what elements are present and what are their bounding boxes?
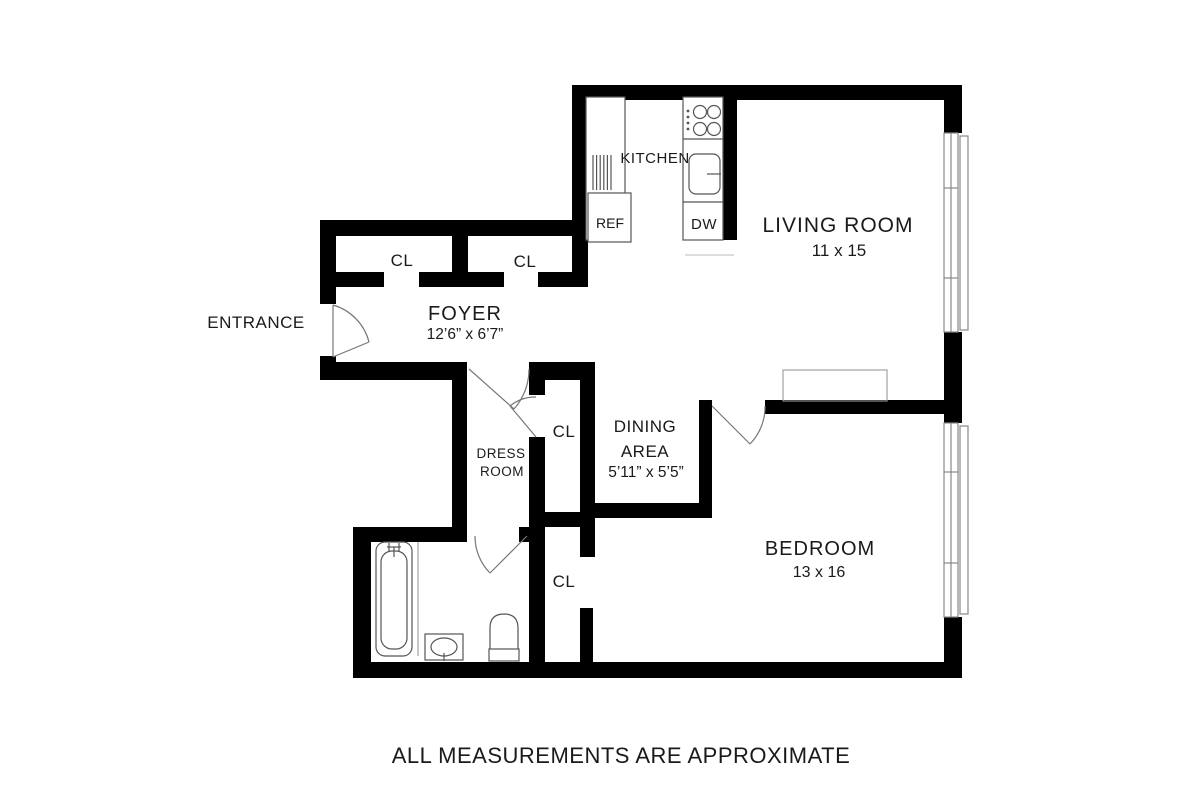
closet-upper-left-label: CL — [391, 251, 414, 270]
radiator-icon — [783, 370, 887, 401]
wall-closet-bottom-a — [334, 272, 384, 287]
closet-hall-label: CL — [553, 422, 576, 441]
floor-plan: KITCHEN REF DW LIVING ROOM 11 x 15 CL CL… — [0, 0, 1200, 800]
bedroom-window-icon — [944, 423, 968, 617]
kitchen-label: KITCHEN — [620, 150, 689, 167]
wall-kitchen-right — [722, 97, 737, 240]
dishwasher-label: DW — [691, 216, 717, 233]
bathroom-fixtures — [376, 542, 519, 661]
wall-dining-left — [580, 362, 595, 557]
toilet-icon — [489, 614, 519, 661]
floor-plan-page: KITCHEN REF DW LIVING ROOM 11 x 15 CL CL… — [0, 0, 1200, 800]
wall-bedroomcl-right-lower — [580, 608, 593, 662]
dining-area-dims: 5’11” x 5’5” — [608, 464, 684, 481]
dress-room-label-line2: ROOM — [480, 464, 524, 479]
wall-foyer-top — [320, 220, 588, 236]
living-room-dims: 11 x 15 — [812, 241, 867, 260]
foyer-label: FOYER — [428, 303, 502, 325]
living-room-label: LIVING ROOM — [762, 214, 913, 237]
wall-dining-right — [699, 400, 712, 517]
closet-bedroom-label: CL — [553, 572, 576, 591]
refrigerator-label: REF — [596, 215, 624, 231]
dress-room-label-line1: DRESS — [476, 446, 525, 461]
wall-dining-bottom — [590, 503, 712, 518]
bedroom-door-icon — [712, 406, 765, 444]
wall-right-middle — [944, 332, 962, 423]
dining-area-label-line2: AREA — [621, 442, 669, 461]
wall-foyer-bottom — [320, 362, 467, 380]
living-room-window-icon — [944, 133, 968, 332]
wall-bathroom-top — [353, 527, 455, 542]
bathtub-icon — [376, 542, 412, 656]
wall-entrance-lower — [320, 356, 336, 380]
kitchen-sink-icon — [689, 154, 721, 194]
bathroom-sink-icon — [425, 634, 463, 661]
bedroom-label: BEDROOM — [765, 538, 875, 560]
wall-closet-bottom-b — [419, 272, 504, 287]
wall-hallcl-left-stub — [529, 362, 545, 395]
closet-upper-right-label: CL — [514, 252, 537, 271]
hall-closet-door-icon — [510, 397, 536, 437]
wall-top — [572, 85, 962, 100]
wall-living-bedroom-divider — [765, 400, 944, 414]
footnote-text: ALL MEASUREMENTS ARE APPROXIMATE — [392, 743, 851, 768]
wall-bottom — [353, 662, 962, 678]
dining-area-label-line1: DINING — [614, 417, 677, 436]
entrance-label: ENTRANCE — [207, 313, 305, 332]
wall-right-upper — [944, 85, 962, 133]
walls — [320, 85, 962, 678]
entrance-door-icon — [333, 305, 369, 357]
wall-hallcl-left-main — [529, 437, 545, 662]
bedroom-dims: 13 x 16 — [793, 564, 846, 581]
wall-dressroom-left — [452, 375, 467, 542]
foyer-dims: 12’6” x 6’7” — [427, 326, 504, 343]
dressroom-door-icon — [469, 369, 529, 409]
wall-bedroomcl-top — [529, 512, 590, 527]
wall-bathroom-left — [353, 527, 371, 678]
